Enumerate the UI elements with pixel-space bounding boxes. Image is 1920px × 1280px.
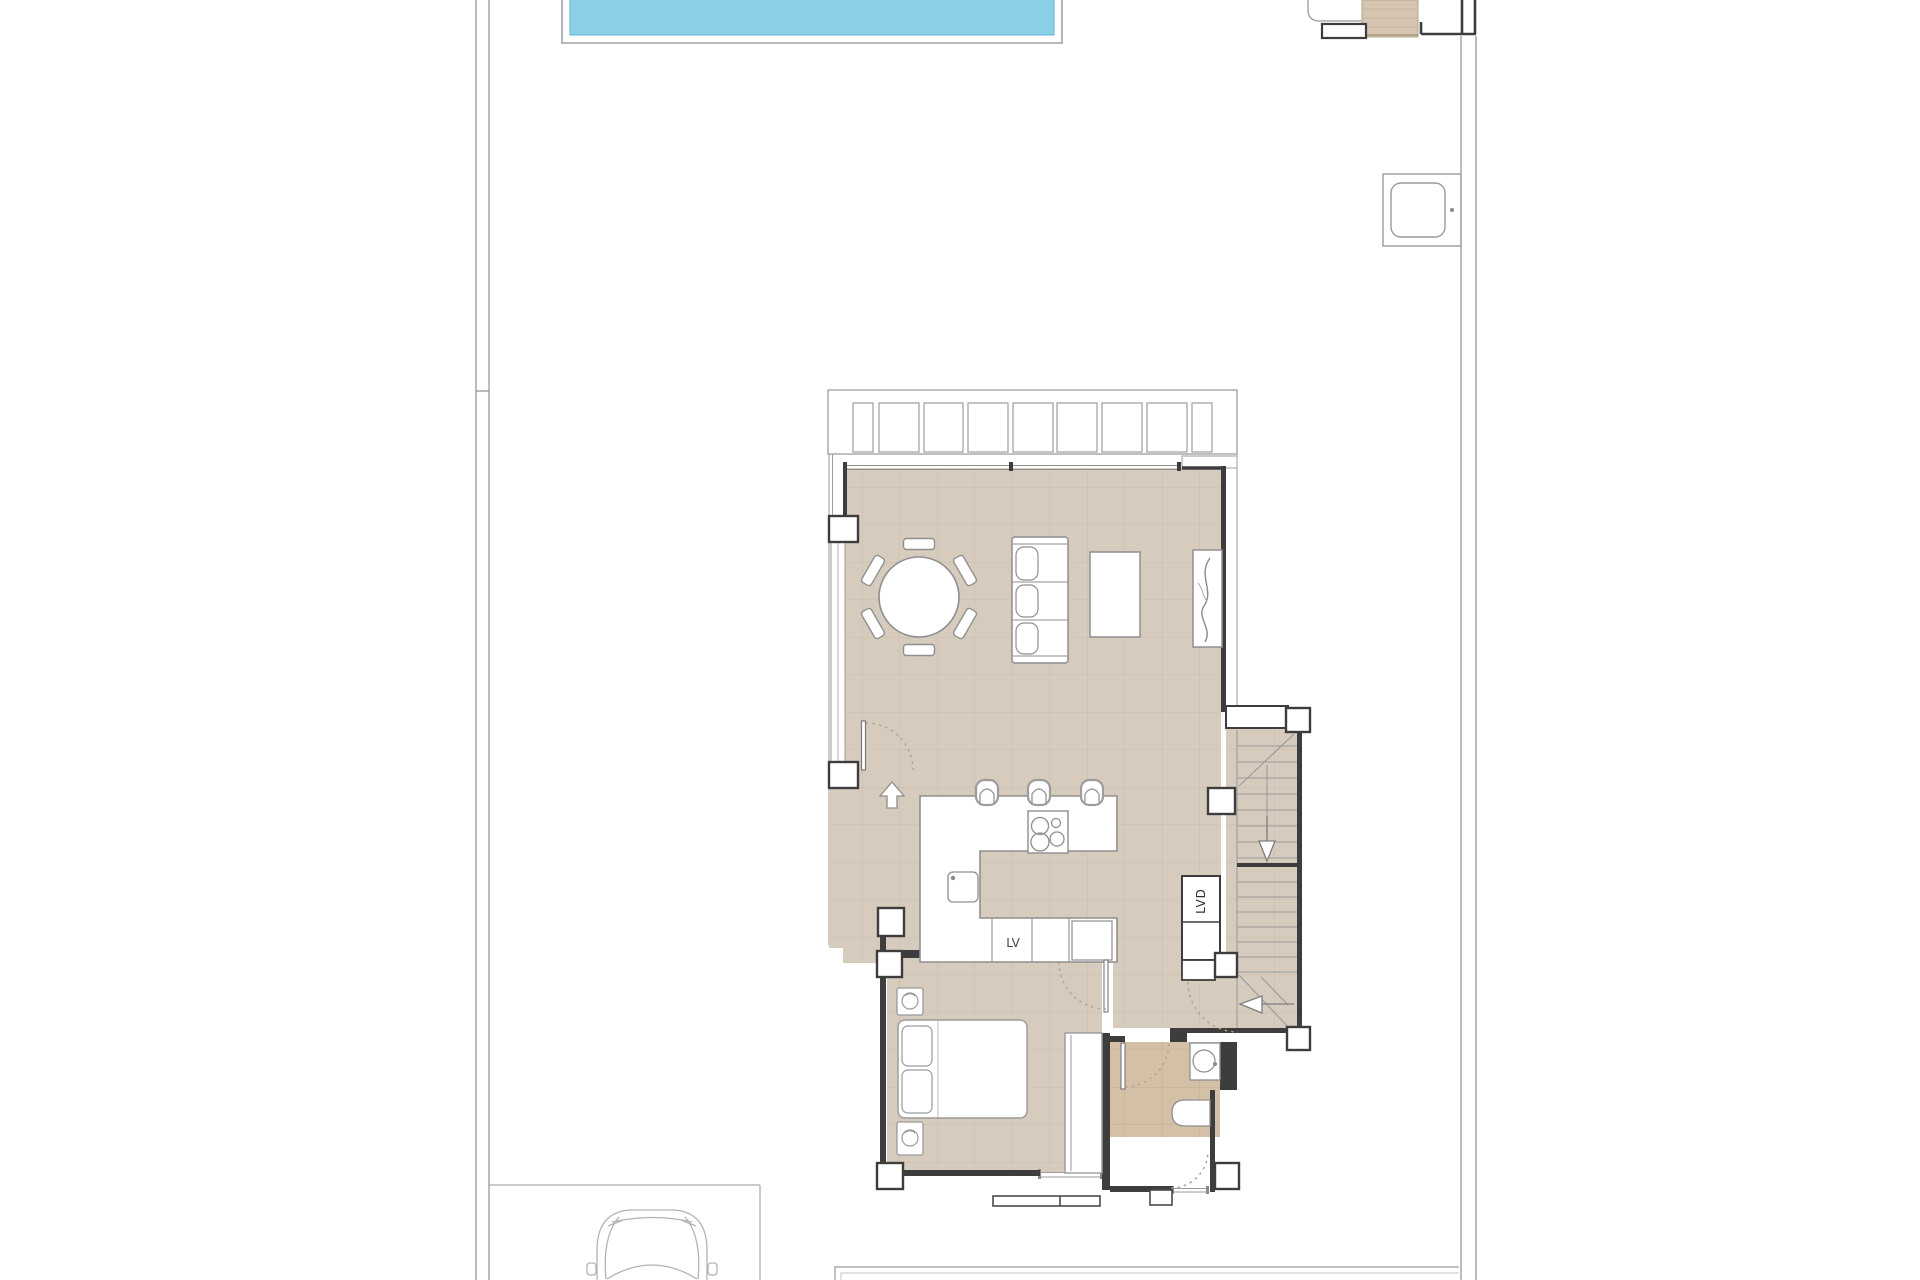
top-right-wall-band: [1182, 456, 1237, 468]
wall-bedroom-bottom: [886, 1170, 1040, 1176]
entry-gate-steps: [1308, 0, 1476, 38]
wall-bath-right-thick: [1220, 1042, 1237, 1090]
outdoor-shower-tray: [1383, 174, 1461, 246]
entry-nook-floor: [829, 786, 882, 948]
car: [587, 1210, 717, 1280]
bedroom-door-leaf: [1104, 960, 1108, 1012]
coffee-table: [1090, 552, 1140, 637]
exterior-steps: [993, 1190, 1172, 1206]
drain-dot: [1450, 208, 1454, 212]
nightstand: [897, 988, 923, 1015]
pillar: [1215, 953, 1237, 977]
floor-plan-drawing: LVD: [0, 0, 1920, 1280]
plot-boundary-right: [1461, 36, 1476, 1280]
parking-area: [489, 1185, 760, 1280]
tv-console: [1193, 550, 1222, 647]
car-windshield: [607, 1265, 697, 1279]
pillow: [902, 1026, 932, 1066]
bar-stools: [976, 780, 1103, 805]
sofa-cushions: [1016, 547, 1038, 654]
car-body: [597, 1210, 707, 1280]
shower-door-swing: [1171, 1151, 1208, 1188]
wall-stairs-right: [1297, 730, 1302, 1028]
dining-table: [879, 557, 959, 637]
hob: [1028, 811, 1068, 853]
entry-path-outline: [1308, 0, 1362, 21]
pillar: [877, 1163, 903, 1189]
dishwasher-label: LV: [1006, 936, 1020, 950]
pillar: [877, 951, 902, 977]
gate-wall: [1421, 0, 1476, 34]
plot-boundary-left: [476, 0, 489, 1280]
swimming-pool: [562, 0, 1062, 43]
wall-bedroom-bath: [1102, 1033, 1110, 1190]
pillar: [829, 762, 858, 788]
wall-corridor-band: [1226, 706, 1288, 728]
pillar: [1287, 1027, 1310, 1050]
pillar: [878, 908, 904, 936]
pillow: [902, 1070, 932, 1113]
pillar: [1208, 788, 1235, 814]
nightstand: [897, 1122, 923, 1155]
floor-plan-page: LVD: [0, 0, 1920, 1280]
pillar: [829, 516, 858, 542]
house-plan: LVD: [828, 390, 1310, 1206]
pillar: [1215, 1163, 1239, 1189]
wall-left-top: [843, 463, 847, 518]
entry-door-leaf: [862, 721, 866, 770]
car-mirror-left: [587, 1263, 596, 1275]
bathroom-door-leaf: [1121, 1043, 1125, 1089]
car-mirror-right: [708, 1263, 717, 1275]
gate-leaf: [1322, 24, 1366, 38]
laundry-label: LVD: [1194, 888, 1208, 914]
pillar: [1286, 708, 1310, 732]
pool-water: [570, 0, 1054, 35]
pergola-slats: [853, 403, 1212, 452]
neighbor-building-outline: [835, 1267, 1459, 1280]
bathtub: [1172, 1100, 1210, 1126]
bathroom-door-sill: [1171, 1186, 1209, 1194]
